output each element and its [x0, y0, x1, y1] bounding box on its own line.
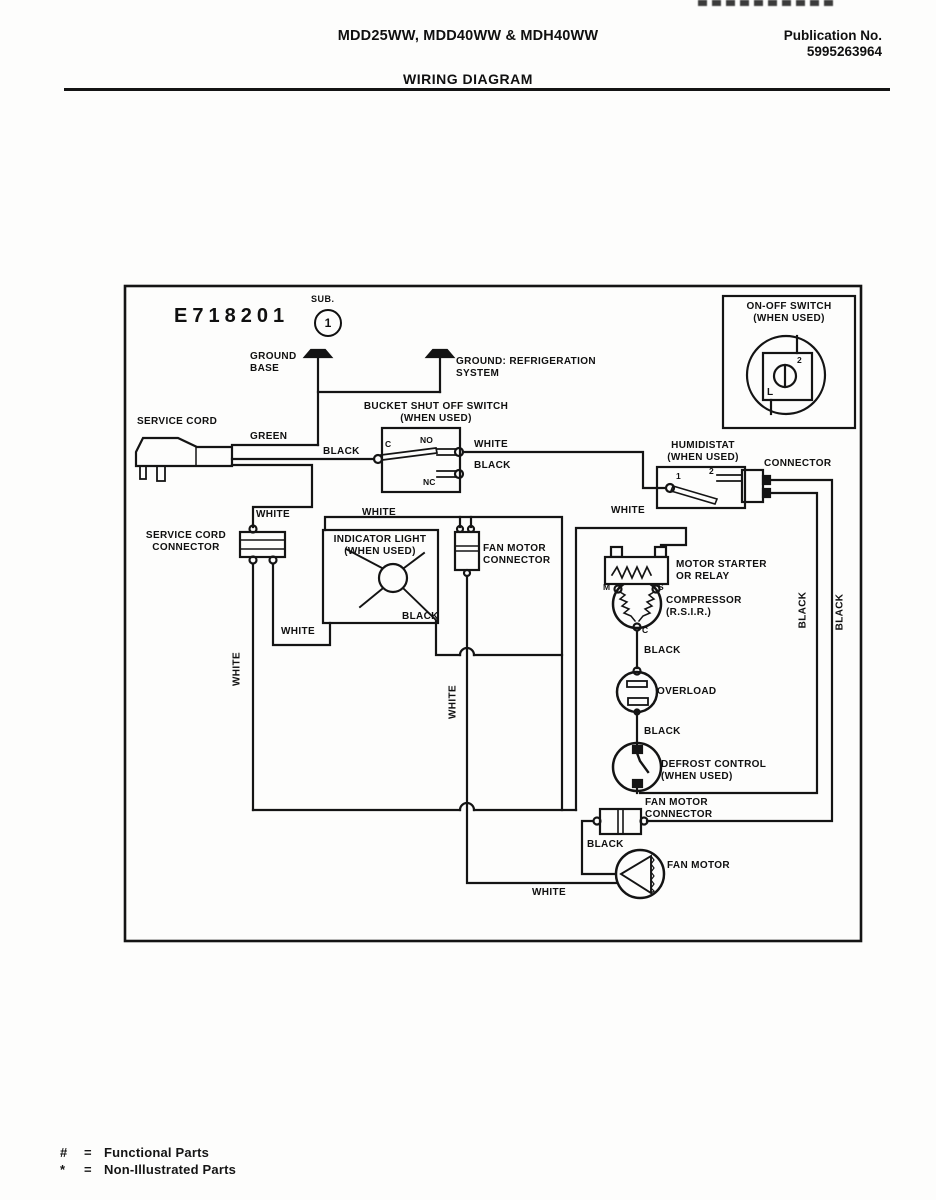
label-terminal-m: M	[603, 583, 610, 593]
scanned-wiring-diagram-page: MDD25WW, MDD40WW & MDH40WW Publication N…	[0, 0, 936, 1200]
service-cord-connector-symbol	[240, 526, 285, 564]
label-white-left-vertical: WHITE	[231, 652, 243, 686]
fan-motor-symbol	[616, 850, 664, 898]
label-fan-motor: FAN MOTOR	[667, 860, 730, 872]
legend-non-illustrated-eq: =	[84, 1162, 104, 1177]
label-terminal-no: NO	[420, 436, 433, 446]
label-black-compressor: BLACK	[644, 645, 681, 657]
label-motor-starter: MOTOR STARTER OR RELAY	[676, 559, 767, 582]
label-service-cord-connector: SERVICE CORD CONNECTOR	[136, 530, 236, 553]
label-black-cord: BLACK	[323, 446, 360, 458]
overload-symbol	[617, 668, 657, 715]
label-terminal-c: C	[385, 440, 391, 450]
service-cord-symbol	[136, 438, 232, 481]
label-on-off-switch: ON-OFF SWITCH (WHEN USED)	[723, 301, 855, 324]
label-fan-motor-connector-lower: FAN MOTOR CONNECTOR	[645, 797, 712, 820]
legend-non-illustrated-parts: *=Non-Illustrated Parts	[60, 1162, 236, 1177]
label-on-off-terminal-l: L	[767, 387, 773, 399]
label-white-bus: WHITE	[362, 507, 396, 519]
bucket-switch-symbol	[374, 428, 463, 492]
sub-label: SUB.	[311, 294, 335, 304]
label-terminal-comp-c: C	[642, 626, 648, 636]
label-service-cord: SERVICE CORD	[137, 416, 217, 428]
wire-lamp-black	[436, 621, 460, 655]
label-black-overload: BLACK	[644, 726, 681, 738]
label-ground-refrigeration: GROUND: REFRIGERATION SYSTEM	[456, 356, 596, 379]
ground-base-symbol	[305, 350, 331, 445]
sub-number: 1	[325, 316, 332, 330]
label-green: GREEN	[250, 431, 287, 443]
label-ground-base: GROUND BASE	[250, 351, 297, 374]
label-white-bottom: WHITE	[532, 887, 566, 899]
defrost-control-symbol	[613, 743, 661, 791]
label-defrost-control: DEFROST CONTROL (WHEN USED)	[661, 759, 766, 782]
legend-functional-parts: #=Functional Parts	[60, 1145, 209, 1160]
label-bucket-switch: BUCKET SHUT OFF SWITCH (WHEN USED)	[347, 401, 525, 424]
legend-non-illustrated-symbol: *	[60, 1162, 84, 1177]
label-black-nc: BLACK	[474, 460, 511, 472]
legend-functional-eq: =	[84, 1145, 104, 1160]
legend-non-illustrated-text: Non-Illustrated Parts	[104, 1162, 236, 1177]
fan-motor-connector-upper-symbol	[455, 526, 479, 576]
legend-functional-symbol: #	[60, 1145, 84, 1160]
label-black-fan: BLACK	[587, 839, 624, 851]
label-on-off-terminal-2: 2	[797, 356, 802, 366]
label-compressor: COMPRESSOR (R.S.I.R.)	[666, 595, 742, 618]
fan-motor-connector-lower-symbol	[594, 809, 648, 834]
label-white-drop: WHITE	[256, 509, 290, 521]
wire-black-right-inner	[640, 493, 817, 793]
label-humidistat: HUMIDISTAT (WHEN USED)	[651, 440, 755, 463]
label-black-right-outer: BLACK	[834, 594, 846, 631]
label-white-starter: WHITE	[611, 505, 645, 517]
ground-refrigeration-symbol	[318, 350, 453, 392]
motor-starter-symbol	[605, 547, 668, 584]
wire-white-center-vertical	[467, 576, 619, 883]
drawing-number: E718201	[174, 305, 289, 328]
label-overload: OVERLOAD	[657, 686, 716, 698]
label-terminal-s: S	[658, 583, 664, 593]
label-white-mid-link: WHITE	[281, 626, 315, 638]
legend-functional-text: Functional Parts	[104, 1145, 209, 1160]
sub-number-badge: 1	[314, 309, 342, 337]
wiring-svg	[0, 0, 936, 1200]
label-black-lamp: BLACK	[402, 611, 439, 623]
compressor-symbol	[613, 580, 661, 631]
label-fan-motor-connector-upper: FAN MOTOR CONNECTOR	[483, 543, 550, 566]
label-white-center-vertical: WHITE	[447, 685, 459, 719]
diagram-border	[125, 286, 861, 941]
label-black-right-inner: BLACK	[797, 592, 809, 629]
label-humidistat-terminal-1: 1	[676, 472, 681, 482]
label-connector: CONNECTOR	[764, 458, 831, 470]
label-terminal-nc: NC	[423, 478, 435, 488]
label-indicator-light: INDICATOR LIGHT (WHEN USED)	[326, 534, 434, 557]
label-white-no: WHITE	[474, 439, 508, 451]
label-humidistat-terminal-2: 2	[709, 467, 714, 477]
